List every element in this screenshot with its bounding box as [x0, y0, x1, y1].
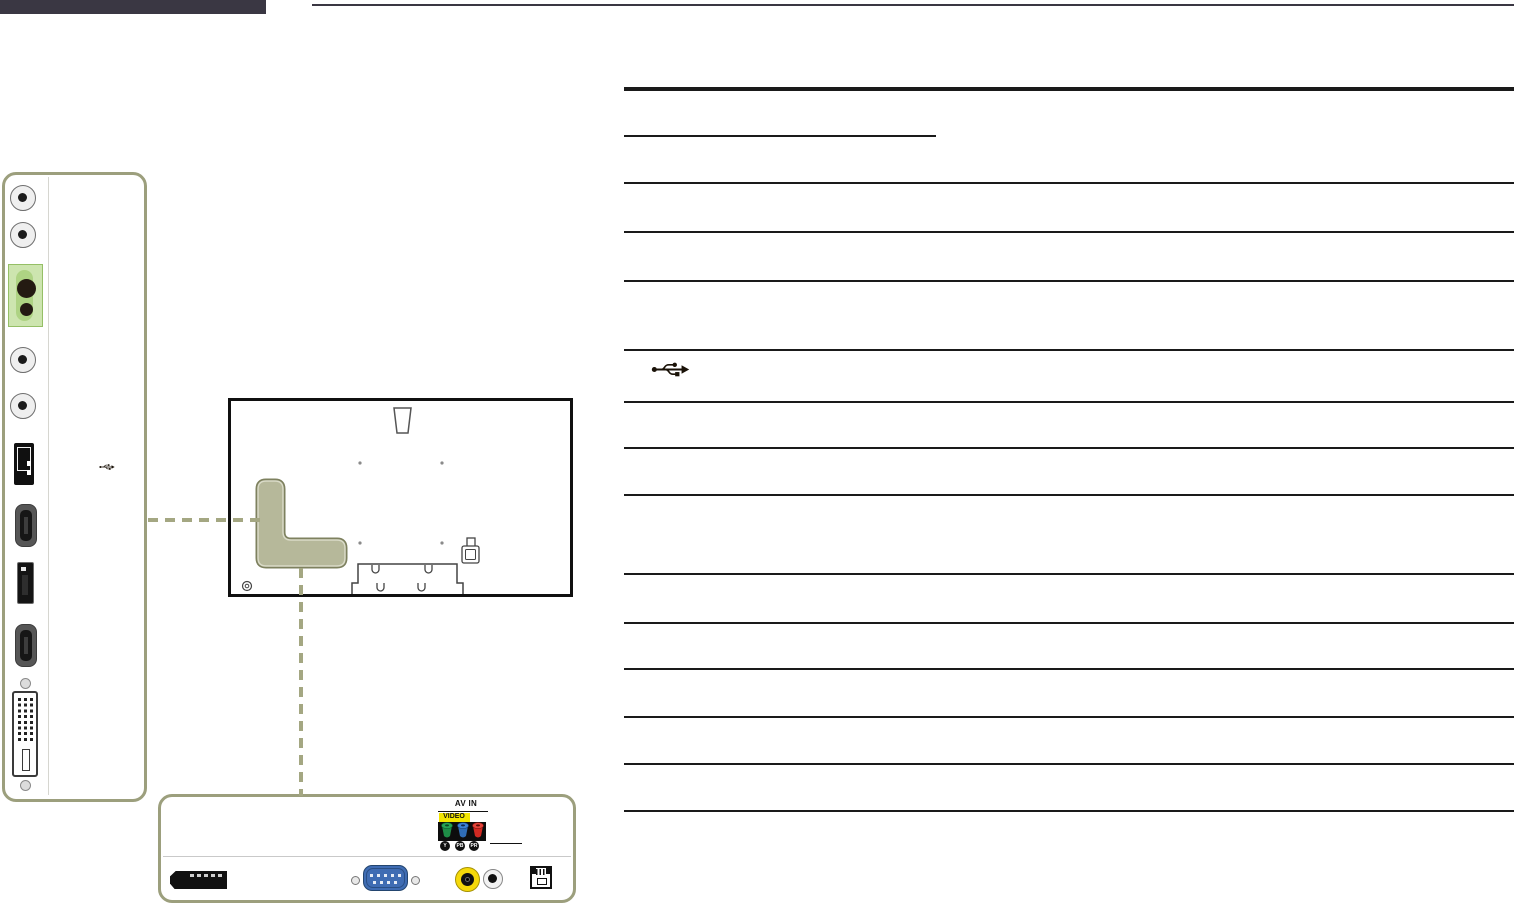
- header-rule: [312, 4, 1514, 6]
- bottom-panel-diagram: AV IN VIDEO: [158, 794, 576, 903]
- table-row-line: [624, 280, 1514, 282]
- vesa-hole: [440, 541, 443, 544]
- dvi-screw-icon: [20, 780, 31, 791]
- audio-jack-icon: [10, 222, 36, 248]
- table-row-line: [624, 401, 1514, 403]
- port-area-highlight: [258, 481, 345, 566]
- table-row-line: [624, 716, 1514, 718]
- hdmi-port-icon: [15, 504, 37, 547]
- av-in-underline: [438, 811, 488, 813]
- audio-underline: [490, 843, 522, 845]
- jack-small-icon: [20, 303, 33, 316]
- usb-icon: [99, 461, 115, 473]
- rca-audio-icon: [483, 869, 503, 889]
- vga-port-icon: [363, 865, 408, 891]
- component-jack-red: [473, 823, 484, 838]
- audio-jack-icon: [10, 347, 36, 373]
- table-row-line: [624, 231, 1514, 233]
- dvi-pin-grid: [18, 698, 33, 743]
- table-row-line: [624, 349, 1514, 351]
- vga-pin-row: [370, 874, 402, 877]
- manual-page: AV IN VIDEO: [0, 0, 1514, 906]
- display-back-diagram: [231, 401, 570, 594]
- green-highlight-box: [8, 264, 43, 327]
- header-accent-bar: [0, 0, 266, 14]
- component-jack-green: [442, 823, 453, 838]
- table-row-line: [624, 182, 1514, 184]
- vesa-hole: [358, 461, 361, 464]
- audio-jack-icon: [10, 185, 36, 211]
- component-label-pb: PB: [455, 841, 465, 851]
- panel-divider: [48, 177, 49, 795]
- table-row-line: [624, 810, 1514, 812]
- component-label-pr: PR: [469, 841, 479, 851]
- handle-icon: [394, 408, 411, 433]
- component-jack-block: [438, 822, 486, 841]
- callout-dash-vertical: [299, 568, 303, 796]
- kensington-lock-icon: [243, 582, 252, 591]
- vga-screw-icon: [411, 876, 420, 885]
- callout-dash-horizontal: [148, 518, 260, 522]
- av-in-label: AV IN: [445, 799, 487, 808]
- table-row-line: [624, 763, 1514, 765]
- table-row-line: [624, 573, 1514, 575]
- bottom-panel-divider: [163, 856, 571, 857]
- table-row-line: [624, 494, 1514, 496]
- stand-bracket-outline: [352, 564, 463, 594]
- table-row-line: [624, 447, 1514, 449]
- table-row-line: [624, 668, 1514, 670]
- table-header-rule: [624, 87, 1514, 91]
- component-jack-blue: [458, 823, 469, 838]
- dvi-screw-icon: [20, 678, 31, 689]
- vga-screw-icon: [351, 876, 360, 885]
- table-row-line: [624, 622, 1514, 624]
- lan-port-icon: [530, 866, 552, 889]
- component-label-y: Y: [440, 841, 450, 851]
- jack-large-icon: [17, 279, 36, 298]
- lan-port-detail: [546, 868, 550, 874]
- vesa-hole: [440, 461, 443, 464]
- usb-port-icon: [14, 443, 34, 485]
- displayport-icon: [17, 562, 34, 604]
- display-back-outline: [228, 398, 573, 597]
- table-subheader-underline: [624, 135, 936, 137]
- vesa-hole: [358, 541, 361, 544]
- vga-pin-row: [373, 881, 401, 884]
- lan-port-notch: [537, 878, 547, 885]
- rear-panel-diagram: [2, 172, 147, 802]
- hdmi-port-icon: [15, 624, 37, 667]
- power-connector-icon: [462, 546, 479, 563]
- dvi-slot: [22, 749, 30, 771]
- component-jacks-icon: [438, 822, 486, 841]
- lan-port-pins: [536, 869, 546, 875]
- rca-video-icon: [455, 867, 480, 892]
- usb-icon: [648, 361, 693, 378]
- video-label: VIDEO: [439, 813, 470, 822]
- audio-jack-icon: [10, 393, 36, 419]
- dp-out-port-icon: [170, 871, 227, 889]
- dvi-port-icon: [12, 691, 38, 777]
